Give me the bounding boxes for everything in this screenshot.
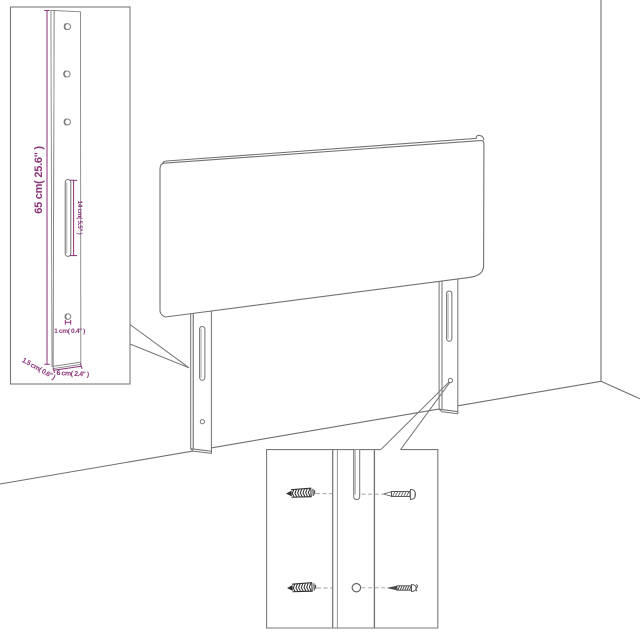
svg-text:14 cm( 5.5'' ): 14 cm( 5.5'' ) xyxy=(76,201,83,235)
svg-text:1 cm( 0.4'' ): 1 cm( 0.4'' ) xyxy=(54,328,85,335)
svg-text:65 cm( 25.6'' ): 65 cm( 25.6'' ) xyxy=(33,146,45,214)
